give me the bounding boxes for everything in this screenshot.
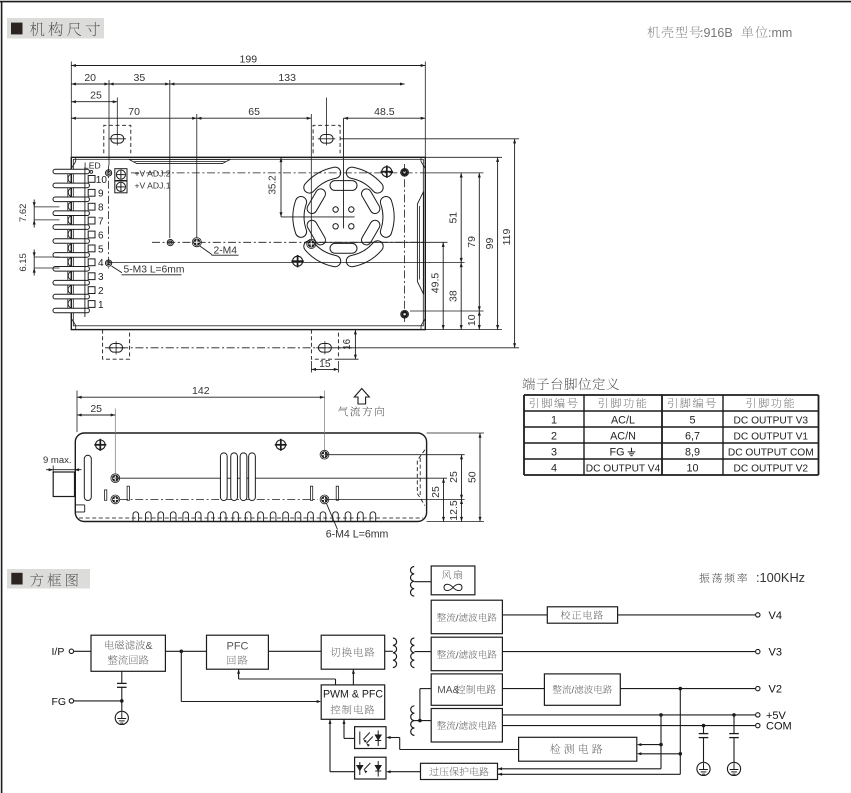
svg-text:25: 25: [448, 471, 460, 483]
svg-text:8: 8: [98, 203, 104, 214]
svg-text:LED: LED: [84, 160, 101, 170]
svg-text:V3: V3: [769, 647, 782, 659]
svg-text:6.15: 6.15: [18, 253, 29, 272]
svg-text:70: 70: [128, 106, 140, 118]
svg-text:35.2: 35.2: [267, 175, 278, 194]
svg-text:5: 5: [98, 244, 104, 255]
svg-text:DC OUTPUT COM: DC OUTPUT COM: [728, 447, 814, 458]
svg-text:V2: V2: [769, 684, 782, 696]
svg-text:DC OUTPUT V2: DC OUTPUT V2: [734, 463, 809, 474]
svg-text:5-M3 L=6mm: 5-M3 L=6mm: [124, 264, 185, 275]
svg-text:AC/N: AC/N: [610, 430, 636, 442]
svg-text:12.5: 12.5: [448, 500, 460, 521]
svg-text:2: 2: [98, 286, 104, 297]
svg-text::916B: :916B: [700, 26, 733, 40]
svg-text:38: 38: [448, 290, 460, 302]
svg-text:48.5: 48.5: [374, 106, 395, 118]
svg-text:51: 51: [448, 212, 460, 224]
svg-text:/: /: [456, 613, 459, 624]
svg-text:8,9: 8,9: [685, 446, 700, 458]
svg-text:4: 4: [98, 258, 104, 269]
svg-text:DC OUTPUT V4: DC OUTPUT V4: [586, 463, 661, 474]
svg-text:PFC: PFC: [227, 641, 249, 653]
svg-text:7: 7: [98, 217, 104, 228]
svg-text:5: 5: [689, 414, 695, 426]
svg-text:AC/L: AC/L: [611, 414, 635, 426]
svg-text:&: &: [146, 641, 153, 652]
svg-text:25: 25: [90, 90, 102, 102]
svg-text:3: 3: [98, 272, 104, 283]
svg-text:20: 20: [84, 72, 96, 84]
svg-text:2-M4: 2-M4: [214, 245, 238, 256]
svg-text:/: /: [456, 721, 459, 732]
svg-text:/: /: [572, 685, 575, 696]
svg-text:79: 79: [466, 236, 478, 248]
svg-text:3: 3: [551, 446, 557, 458]
svg-text:49.5: 49.5: [430, 273, 442, 294]
svg-text:7.62: 7.62: [18, 204, 29, 223]
svg-text:9 max.: 9 max.: [43, 455, 72, 466]
svg-text:PWM & PFC: PWM & PFC: [323, 689, 383, 701]
svg-text:142: 142: [192, 385, 210, 397]
svg-text:199: 199: [240, 53, 258, 65]
svg-text:FG: FG: [52, 696, 67, 708]
svg-text:25: 25: [430, 486, 442, 498]
svg-text:1: 1: [98, 300, 104, 311]
svg-text:50: 50: [467, 471, 479, 483]
svg-text:+V ADJ.2: +V ADJ.2: [135, 168, 171, 178]
svg-text:25: 25: [90, 403, 102, 415]
svg-text:4: 4: [551, 462, 557, 474]
svg-text:DC OUTPUT V3: DC OUTPUT V3: [734, 415, 809, 426]
svg-text:1: 1: [551, 414, 557, 426]
svg-text:10: 10: [686, 462, 698, 474]
svg-text:133: 133: [278, 72, 296, 84]
svg-text:FG: FG: [610, 446, 625, 458]
svg-text:15: 15: [319, 359, 331, 370]
svg-text:9: 9: [98, 189, 104, 200]
svg-text::100KHz: :100KHz: [756, 570, 805, 585]
svg-text:10: 10: [466, 314, 478, 326]
svg-text:65: 65: [248, 106, 260, 118]
svg-text:35: 35: [134, 72, 146, 84]
svg-text:2: 2: [551, 430, 557, 442]
svg-text:10: 10: [96, 175, 108, 186]
svg-text:+V ADJ.1: +V ADJ.1: [135, 181, 171, 191]
svg-text:6,7: 6,7: [685, 430, 700, 442]
svg-text::mm: :mm: [768, 26, 792, 40]
svg-text:DC OUTPUT V1: DC OUTPUT V1: [734, 431, 809, 442]
svg-text:COM: COM: [766, 721, 792, 733]
svg-text:99: 99: [484, 238, 496, 250]
svg-text:6: 6: [98, 230, 104, 241]
svg-text:I/P: I/P: [52, 646, 65, 658]
svg-text:6-M4 L=6mm: 6-M4 L=6mm: [326, 528, 389, 540]
svg-text:V4: V4: [769, 610, 782, 622]
svg-text:/: /: [456, 650, 459, 661]
svg-text:119: 119: [501, 228, 513, 245]
